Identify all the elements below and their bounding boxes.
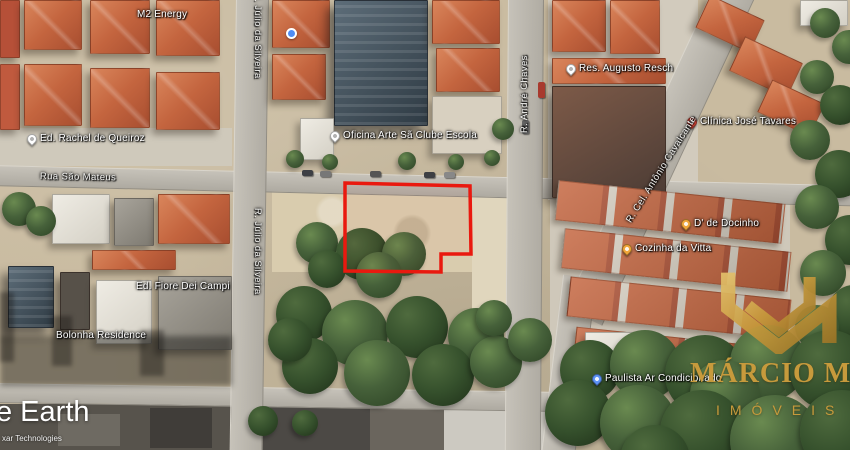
poi-text: Ed. Fiore Dei Campi (136, 281, 230, 292)
tree (448, 154, 464, 170)
map-pin-icon (564, 61, 578, 75)
poi-label-ed-rachel[interactable]: Ed. Rachel de Queiroz (27, 133, 145, 144)
parked-car (424, 172, 435, 178)
brand-name: MÁRCIO MACÊ (690, 358, 850, 390)
poi-text: Ed. Rachel de Queiroz (40, 133, 145, 144)
tree (412, 344, 474, 406)
tree (344, 340, 410, 406)
parked-car (302, 170, 313, 176)
tree (308, 250, 346, 288)
map-pin-icon (328, 128, 342, 142)
parked-car (538, 82, 545, 98)
parked-car (320, 171, 331, 177)
tall-building-roof (334, 0, 428, 126)
street-label-julio-silveira: R. Júlio da Silveira (252, 208, 263, 295)
poi-label-ed-fiore[interactable]: Ed. Fiore Dei Campi (136, 281, 230, 292)
building-roof (24, 0, 82, 50)
tree (26, 206, 56, 236)
building-roof (90, 68, 150, 128)
poi-label-cozinha[interactable]: Cozinha da Vitta (622, 243, 711, 254)
building-roof (552, 0, 606, 52)
map-pin-icon (25, 131, 39, 145)
poi-text: Oficina Arte Sã Clube Escola (343, 130, 477, 141)
building-roof (156, 72, 220, 130)
tree (322, 154, 338, 170)
poi-label-oficina[interactable]: Oficina Arte Sã Clube Escola (330, 130, 477, 141)
gray-lot (370, 404, 446, 450)
poi-text: Bolonha Residence (56, 330, 146, 341)
building-roof (610, 0, 660, 54)
poi-text: Cozinha da Vitta (635, 243, 711, 254)
poi-label-m2-energy[interactable]: M2 Energy (137, 9, 187, 20)
tree (820, 85, 850, 125)
parked-car (444, 172, 455, 178)
building-roof (272, 0, 330, 48)
shadow-area (0, 336, 232, 386)
poi-dot-icon[interactable] (286, 28, 297, 39)
building-roof (0, 0, 20, 58)
tree (484, 150, 500, 166)
tall-building-roof (8, 266, 54, 328)
poi-label-docinho[interactable]: D' de Docinho (681, 218, 759, 229)
building-roof (114, 198, 154, 246)
poi-text: D' de Docinho (694, 218, 759, 229)
poi-label-res-augusto[interactable]: Res. Augusto Resch (566, 63, 673, 74)
tree (268, 318, 312, 362)
building-roof (92, 250, 176, 270)
tree (248, 406, 278, 436)
poi-text: Res. Augusto Resch (579, 63, 673, 74)
tree (508, 318, 552, 362)
poi-label-clinica[interactable]: Clínica José Tavares (687, 116, 796, 127)
brand-subtitle: IMÓVEIS (716, 402, 844, 418)
map-pin-icon (679, 216, 693, 230)
street-label-andre-chaves: R. André Chaves (519, 55, 530, 133)
tree (476, 300, 512, 336)
poi-text: Clínica José Tavares (700, 116, 796, 127)
tree (292, 410, 318, 436)
map-pin-icon (620, 241, 634, 255)
road-julio-da-silveira (230, 0, 269, 450)
satellite-map[interactable]: M2 Energy Ed. Rachel de Queiroz Oficina … (0, 0, 850, 450)
building-roof (432, 0, 500, 44)
map-pin-icon (590, 371, 604, 385)
dark-roof (150, 408, 212, 448)
poi-text: M2 Energy (137, 9, 187, 20)
parked-car (370, 171, 381, 177)
imagery-credit: xar Technologies (2, 434, 62, 443)
tree (356, 252, 402, 298)
tree (832, 30, 850, 64)
tree (492, 118, 514, 140)
building-roof (52, 194, 110, 244)
street-label-sao-mateus: Rua São Mateus (40, 171, 117, 183)
poi-label-bolonha[interactable]: Bolonha Residence (56, 330, 146, 341)
building-roof (0, 64, 20, 130)
building-roof (436, 48, 500, 92)
building-roof (24, 64, 82, 126)
google-earth-logo: e Earth (0, 396, 90, 429)
tree (810, 8, 840, 38)
building-roof (272, 54, 326, 100)
building-roof (158, 194, 230, 244)
tree (398, 152, 416, 170)
tree (286, 150, 304, 168)
street-label-julio-silveira-top: R. Júlio da Silveira (252, 0, 263, 79)
